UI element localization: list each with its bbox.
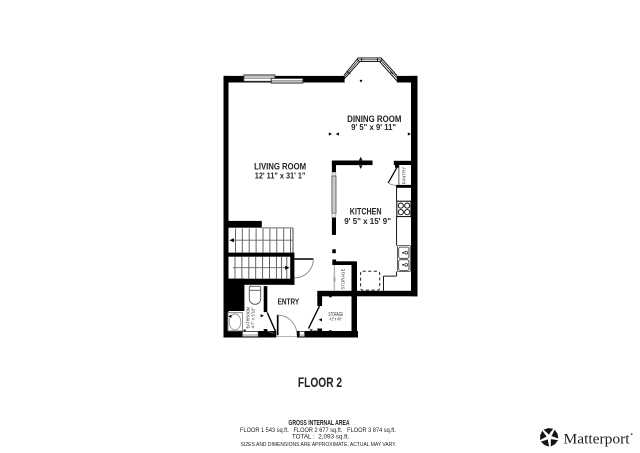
svg-text:SIZES AND DIMENSIONS ARE APPRO: SIZES AND DIMENSIONS ARE APPROXIMATE, AC… (241, 442, 397, 448)
svg-text:9' 5" x 9' 11": 9' 5" x 9' 11" (351, 123, 396, 132)
svg-text:4'1" x 4'8": 4'1" x 4'8" (330, 317, 342, 322)
svg-text:PANTRY: PANTRY (402, 167, 407, 185)
svg-text:Matterport: Matterport (564, 431, 631, 447)
svg-text:9' 5" x 15' 9": 9' 5" x 15' 9" (344, 217, 391, 226)
svg-text:STORAGE: STORAGE (341, 269, 346, 290)
svg-text:LIVING ROOM: LIVING ROOM (254, 162, 306, 172)
svg-text:4'7" x 5'10": 4'7" x 5'10" (250, 307, 255, 329)
svg-text:KITCHEN: KITCHEN (350, 207, 382, 217)
svg-text:TOTAL : 2,093 sq.ft.: TOTAL : 2,093 sq.ft. (292, 433, 350, 440)
svg-text:ENTRY: ENTRY (278, 297, 300, 307)
svg-text:FLOOR 2: FLOOR 2 (298, 375, 342, 390)
svg-text:12' 11" x 31' 1": 12' 11" x 31' 1" (255, 171, 306, 180)
